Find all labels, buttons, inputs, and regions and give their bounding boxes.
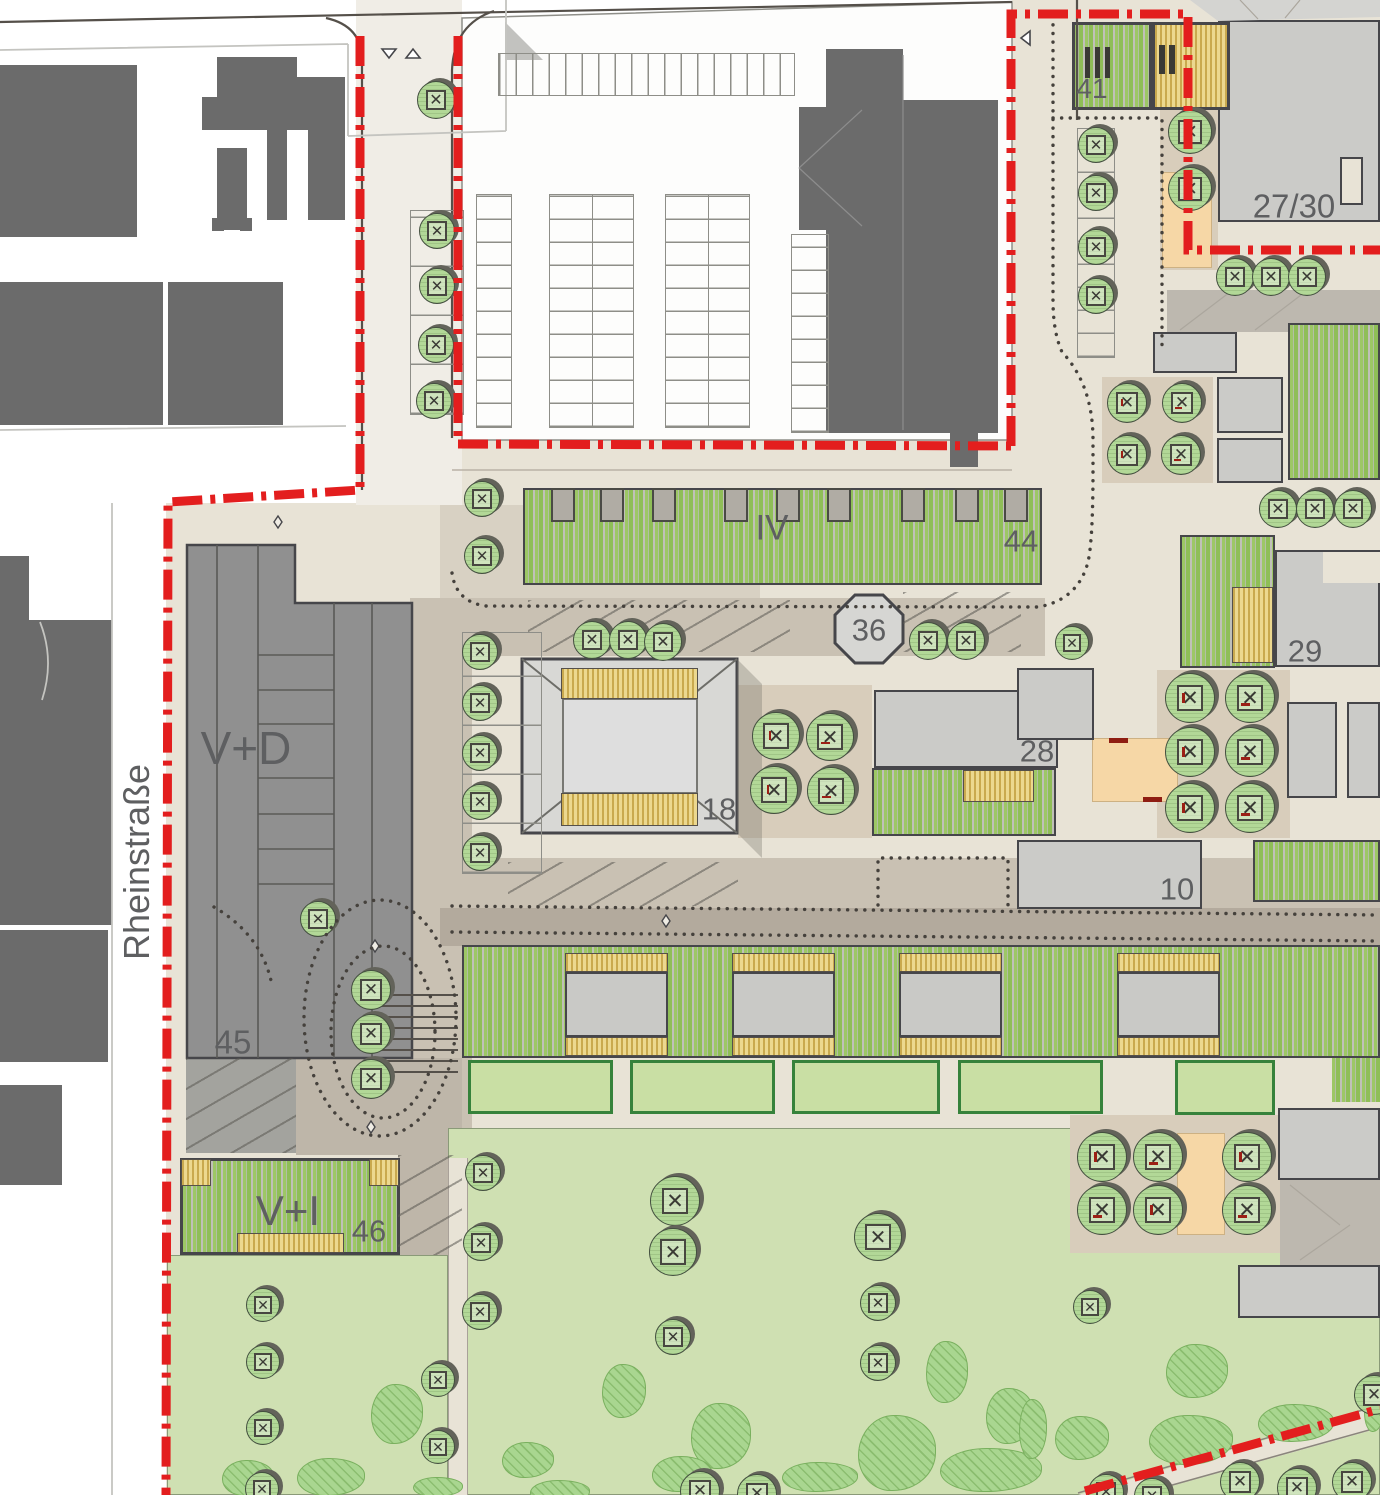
tree: ✕ <box>1073 1290 1107 1324</box>
tree-planter: ✕ <box>470 693 489 712</box>
tree: ✕ <box>1133 1185 1183 1235</box>
tree: ✕ <box>1225 783 1275 833</box>
deck-18-north <box>561 668 698 699</box>
tree-planter: ✕ <box>663 1327 682 1346</box>
tree: ✕ <box>1225 673 1275 723</box>
tree: ✕ <box>1078 229 1114 265</box>
tree-planter: ✕ <box>582 630 602 650</box>
tree: ✕ <box>1077 1185 1127 1235</box>
label-iv: IV <box>755 511 788 546</box>
tree-planter: ✕ <box>1063 634 1081 652</box>
roof-notch <box>901 488 925 522</box>
shrub <box>530 1480 590 1495</box>
tree-planter: ✕ <box>472 489 491 508</box>
tree-planter: ✕ <box>1086 183 1105 202</box>
deck-46-ne <box>369 1159 399 1186</box>
tree-planter: ✕ <box>427 221 446 240</box>
tree: ✕ <box>419 268 455 304</box>
building-green-roof-east <box>1288 323 1380 480</box>
plaza-orange-southeast <box>1177 1133 1225 1235</box>
tree: ✕ <box>1077 1132 1127 1182</box>
tree: ✕ <box>909 622 947 660</box>
tree: ✕ <box>351 970 391 1010</box>
bench-mark <box>1238 1215 1248 1218</box>
tree: ✕ <box>947 622 985 660</box>
tree-planter: ✕ <box>1341 1471 1362 1492</box>
tree: ✕ <box>246 1411 280 1445</box>
tree-planter: ✕ <box>472 546 491 565</box>
tree-planter: ✕ <box>1170 444 1191 465</box>
bench-mark <box>1182 747 1185 757</box>
bench-mark <box>1149 1162 1159 1165</box>
tree: ✕ <box>807 767 855 815</box>
tree-planter: ✕ <box>426 335 445 354</box>
garden-plot <box>1175 1060 1275 1115</box>
tree-planter: ✕ <box>473 1163 492 1182</box>
tree-planter: ✕ <box>1116 444 1137 465</box>
label-n46: 46 <box>352 1216 386 1247</box>
tree-planter: ✕ <box>254 1353 272 1371</box>
tree-planter: ✕ <box>424 391 443 410</box>
bench-mark <box>1174 459 1181 461</box>
courtyard-notch <box>1323 552 1380 583</box>
tree: ✕ <box>1252 258 1290 296</box>
bench-mark <box>1241 703 1251 706</box>
shrub <box>297 1458 365 1495</box>
courtyard-deck <box>1117 1037 1220 1056</box>
tree-planter: ✕ <box>1237 795 1264 822</box>
tree-planter: ✕ <box>1145 1144 1172 1171</box>
tree: ✕ <box>462 634 498 670</box>
tree-planter: ✕ <box>1237 685 1264 712</box>
tree: ✕ <box>1225 727 1275 777</box>
roof-notch <box>955 488 979 522</box>
courtyard-deck <box>565 953 668 972</box>
tree-planter: ✕ <box>1305 499 1325 519</box>
building-green-roof-east <box>1253 840 1380 902</box>
tree-planter: ✕ <box>426 90 446 110</box>
existing-building <box>0 65 137 237</box>
tree-planter: ✕ <box>1089 1144 1116 1171</box>
label-n29: 29 <box>1288 636 1322 667</box>
roof-hatch <box>398 1155 462 1255</box>
tree: ✕ <box>462 735 498 771</box>
tree: ✕ <box>300 901 336 937</box>
tree-planter: ✕ <box>1089 1197 1116 1224</box>
tree: ✕ <box>351 1014 391 1054</box>
tree: ✕ <box>1165 783 1215 833</box>
tree-planter: ✕ <box>1177 685 1204 712</box>
tree-planter: ✕ <box>1178 177 1202 201</box>
roof-notch <box>724 488 748 522</box>
bench-mark <box>821 742 830 745</box>
roof-notch <box>652 488 676 522</box>
bench-mark <box>769 731 772 740</box>
tree-planter: ✕ <box>429 1371 447 1389</box>
courtyard-deck <box>565 1037 668 1056</box>
courtyard-notch <box>1340 157 1363 205</box>
tree-planter: ✕ <box>1229 1471 1250 1492</box>
tree-planter: ✕ <box>868 1293 887 1312</box>
tree: ✕ <box>1168 110 1212 154</box>
existing-building <box>168 282 283 425</box>
existing-building <box>0 1085 62 1185</box>
shrub <box>413 1477 463 1495</box>
tree-planter: ✕ <box>470 743 489 762</box>
tree-planter: ✕ <box>1081 1298 1099 1316</box>
parking-stalls <box>549 194 634 428</box>
bench-mark <box>1241 757 1251 760</box>
building-small <box>1238 1265 1380 1318</box>
tree: ✕ <box>573 621 611 659</box>
tree: ✕ <box>463 1225 499 1261</box>
tree: ✕ <box>752 712 800 760</box>
tree-planter: ✕ <box>1096 1482 1115 1495</box>
tree: ✕ <box>421 1430 455 1464</box>
tree-planter: ✕ <box>1116 392 1137 413</box>
roof-vent <box>1169 45 1175 74</box>
label-n36: 36 <box>852 615 886 646</box>
tree: ✕ <box>1334 490 1372 528</box>
tree: ✕ <box>860 1345 896 1381</box>
tree: ✕ <box>1078 127 1114 163</box>
tree-planter: ✕ <box>470 792 489 811</box>
tree-planter: ✕ <box>956 631 976 651</box>
bench-mark <box>1121 451 1123 458</box>
tree: ✕ <box>464 481 500 517</box>
tree: ✕ <box>465 1155 501 1191</box>
courtyard <box>732 972 835 1037</box>
tree-planter: ✕ <box>818 778 844 804</box>
roof-iso <box>1280 1180 1380 1265</box>
tree-planter: ✕ <box>746 1483 767 1495</box>
parking-hatch <box>508 862 738 906</box>
tree-planter: ✕ <box>360 1068 381 1089</box>
tree: ✕ <box>609 621 647 659</box>
roof-notch <box>600 488 624 522</box>
tree-planter: ✕ <box>618 630 638 650</box>
roof-notch <box>551 488 575 522</box>
garden-plot <box>792 1060 940 1114</box>
garden-plot <box>468 1060 613 1114</box>
tree-planter: ✕ <box>360 1023 381 1044</box>
tree-planter: ✕ <box>1286 1477 1307 1495</box>
tree-planter: ✕ <box>689 1480 710 1495</box>
tree-planter: ✕ <box>1343 499 1363 519</box>
tree: ✕ <box>655 1319 691 1355</box>
existing-building <box>0 930 108 1062</box>
roof-vent <box>1159 45 1165 74</box>
roof-notch <box>1004 488 1028 522</box>
tree-planter: ✕ <box>1225 267 1245 287</box>
tree-planter: ✕ <box>253 1480 271 1495</box>
tree: ✕ <box>246 1288 280 1322</box>
bench-mark <box>1182 803 1185 813</box>
tree-planter: ✕ <box>1234 1144 1261 1171</box>
courtyard-deck <box>1117 953 1220 972</box>
tree: ✕ <box>416 383 452 419</box>
parking-stalls <box>791 234 829 433</box>
label-n44: 44 <box>1004 526 1038 557</box>
tree-planter: ✕ <box>1178 120 1202 144</box>
bench-mark <box>822 796 831 799</box>
building-small <box>1153 332 1237 373</box>
tree-planter: ✕ <box>763 723 789 749</box>
label-rheinstrasse: Rheinstraße <box>119 764 155 960</box>
building-28-annex <box>1017 668 1094 740</box>
tree-planter: ✕ <box>1261 267 1281 287</box>
bench-mark <box>1093 1215 1103 1218</box>
tree: ✕ <box>1216 258 1254 296</box>
courtyard <box>565 972 668 1037</box>
parking-stalls <box>665 194 750 428</box>
tree: ✕ <box>1168 167 1212 211</box>
tree-plaza-east-of-18 <box>738 685 872 838</box>
garden-plot <box>958 1060 1103 1114</box>
roof-hatch <box>186 1058 296 1153</box>
tree-planter: ✕ <box>660 1239 686 1265</box>
tree: ✕ <box>351 1059 391 1099</box>
label-n45: 45 <box>215 1026 252 1059</box>
bike-rack <box>380 985 458 1073</box>
existing-building <box>202 97 218 130</box>
existing-building <box>240 218 252 231</box>
building-small <box>1217 438 1283 483</box>
tree-planter: ✕ <box>817 724 843 750</box>
courtyard-deck <box>732 953 835 972</box>
label-v-d: V+D <box>201 725 292 771</box>
bench-mark <box>1121 399 1123 406</box>
tree: ✕ <box>1055 626 1089 660</box>
tree-planter: ✕ <box>1268 499 1288 519</box>
existing-building <box>308 112 345 220</box>
tree: ✕ <box>1220 1462 1260 1495</box>
label-n41: 41 <box>1076 75 1107 103</box>
tree: ✕ <box>1222 1132 1272 1182</box>
courtyard <box>1117 972 1220 1037</box>
label-n10: 10 <box>1160 874 1194 905</box>
tree: ✕ <box>417 81 455 119</box>
tree: ✕ <box>860 1285 896 1321</box>
site-plan-canvas: RheinstraßeV+D45V+I46IV4436182829104127/… <box>0 0 1380 1495</box>
building-small <box>1287 702 1337 798</box>
tree-planter: ✕ <box>1086 237 1105 256</box>
courtyard <box>899 972 1002 1037</box>
existing-building <box>0 282 163 425</box>
tree-planter: ✕ <box>868 1353 887 1372</box>
tree-planter: ✕ <box>254 1419 272 1437</box>
tree: ✕ <box>650 1176 700 1226</box>
tree-planter: ✕ <box>653 632 673 652</box>
tree-planter: ✕ <box>471 1233 490 1252</box>
tree-planter: ✕ <box>470 1302 489 1321</box>
courtyard-deck <box>899 1037 1002 1056</box>
tree: ✕ <box>649 1228 697 1276</box>
bench-mark <box>1241 813 1251 816</box>
tree: ✕ <box>1222 1185 1272 1235</box>
tree: ✕ <box>1165 673 1215 723</box>
existing-building <box>212 218 224 231</box>
building-small <box>1347 702 1380 798</box>
tree-planter: ✕ <box>360 979 381 1000</box>
tree-planter: ✕ <box>1177 795 1204 822</box>
tree-planter: ✕ <box>1142 1486 1161 1495</box>
tree: ✕ <box>1288 258 1326 296</box>
bench-mark <box>1094 1152 1097 1162</box>
tree: ✕ <box>1332 1462 1372 1495</box>
tree: ✕ <box>1162 383 1202 423</box>
tree: ✕ <box>421 1363 455 1397</box>
tree: ✕ <box>1078 175 1114 211</box>
lawn-west <box>167 1255 448 1495</box>
tree-planter: ✕ <box>662 1188 689 1215</box>
tree: ✕ <box>1133 1132 1183 1182</box>
building-small <box>1278 1108 1380 1180</box>
tree: ✕ <box>750 766 798 814</box>
tree-planter: ✕ <box>1297 267 1317 287</box>
building-small <box>1217 377 1283 433</box>
deck-46-nw <box>181 1159 211 1186</box>
tree-planter: ✕ <box>1237 739 1264 766</box>
tree-planter: ✕ <box>918 631 938 651</box>
label-n28: 28 <box>1020 736 1054 767</box>
tree: ✕ <box>1259 490 1297 528</box>
tree-planter: ✕ <box>429 1438 447 1456</box>
deck-46-south <box>237 1233 344 1253</box>
tree: ✕ <box>462 784 498 820</box>
tree-planter: ✕ <box>470 843 489 862</box>
tree-planter: ✕ <box>470 642 489 661</box>
deck-28 <box>963 770 1034 802</box>
tree-planter: ✕ <box>1234 1197 1261 1224</box>
deck-29 <box>1232 587 1273 663</box>
tree: ✕ <box>462 685 498 721</box>
tree: ✕ <box>1107 383 1147 423</box>
tree: ✕ <box>854 1213 902 1261</box>
tree-planter: ✕ <box>1086 286 1105 305</box>
existing-building <box>267 120 287 220</box>
tree: ✕ <box>462 835 498 871</box>
tree: ✕ <box>462 1294 498 1330</box>
tree-planter: ✕ <box>1171 392 1192 413</box>
bench-mark <box>767 785 770 794</box>
tree: ✕ <box>1161 435 1201 475</box>
tree-planter: ✕ <box>865 1224 891 1250</box>
label-n27-30: 27/30 <box>1253 190 1336 223</box>
label-v-i: V+I <box>256 1190 320 1232</box>
tree: ✕ <box>418 327 454 363</box>
walkway-band <box>440 908 1380 946</box>
existing-building <box>0 620 112 925</box>
bench-mark <box>1150 1205 1153 1215</box>
bench-mark <box>1239 1152 1242 1162</box>
parking-stalls <box>476 194 512 428</box>
bench-mark <box>1175 407 1182 409</box>
parking-stalls <box>498 53 795 96</box>
courtyard-deck <box>732 1037 835 1056</box>
garden-plot <box>630 1060 775 1114</box>
bench-mark <box>1182 693 1185 703</box>
tree: ✕ <box>1107 435 1147 475</box>
tree-planter: ✕ <box>308 909 327 928</box>
tree: ✕ <box>246 1345 280 1379</box>
tree-planter: ✕ <box>1363 1384 1380 1405</box>
tree: ✕ <box>1296 490 1334 528</box>
tree: ✕ <box>806 713 854 761</box>
tree-planter: ✕ <box>1145 1197 1172 1224</box>
courtyard-deck <box>899 953 1002 972</box>
roof-notch <box>827 488 851 522</box>
deck-18-south <box>561 793 698 826</box>
label-n18: 18 <box>702 794 736 825</box>
tree-planter: ✕ <box>1177 739 1204 766</box>
tree-planter: ✕ <box>761 777 787 803</box>
rowhouse-band-ext <box>1332 1058 1380 1102</box>
tree-planter: ✕ <box>1086 135 1105 154</box>
tree: ✕ <box>1165 727 1215 777</box>
tree: ✕ <box>644 623 682 661</box>
tree: ✕ <box>419 213 455 249</box>
tree: ✕ <box>464 538 500 574</box>
tree-planter: ✕ <box>427 276 446 295</box>
tree-planter: ✕ <box>254 1296 272 1314</box>
tree: ✕ <box>1078 278 1114 314</box>
